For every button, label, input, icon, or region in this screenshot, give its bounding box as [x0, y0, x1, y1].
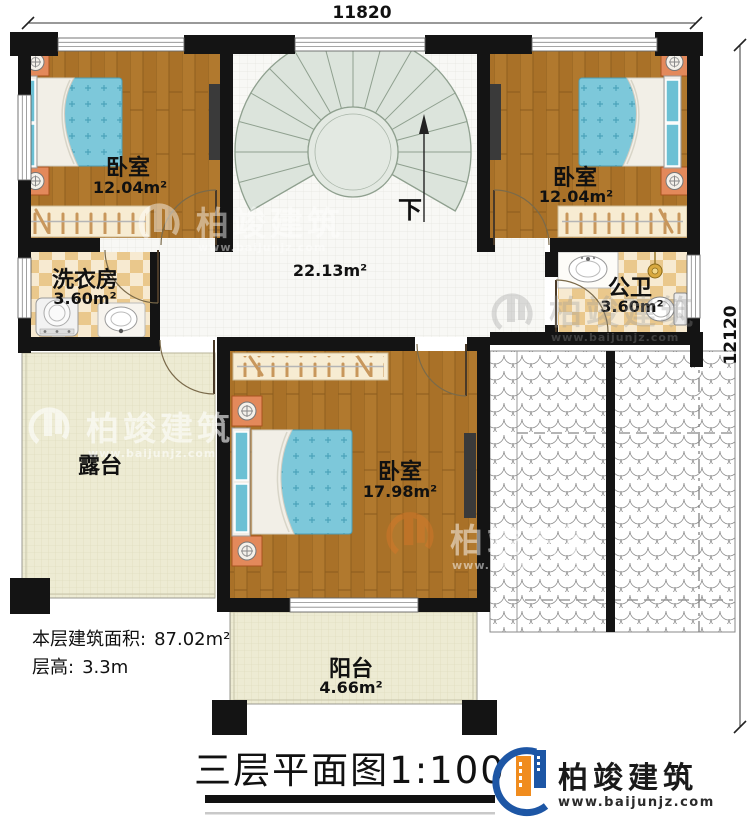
- hall-area: 22.13m²: [293, 261, 367, 280]
- window: [295, 38, 425, 51]
- drawing-title: 三层平面图1:100: [194, 749, 506, 815]
- wardrobe: [22, 206, 150, 237]
- laundry-area: 3.60m²: [53, 289, 116, 308]
- window: [58, 38, 184, 51]
- floor-area-line: 本层建筑面积:87.02m²: [32, 629, 230, 650]
- tv-panel: [464, 433, 476, 518]
- tv-panel: [209, 84, 220, 160]
- wardrobe: [558, 206, 687, 237]
- wardrobe: [233, 353, 388, 380]
- svg-text:柏竣建筑: 柏竣建筑: [86, 409, 234, 448]
- floor-plan-drawing: 下: [0, 0, 750, 833]
- dimension-top: 11820: [22, 3, 702, 29]
- floor-plan-page: 下: [0, 0, 750, 833]
- title-underline-thin: [205, 812, 495, 815]
- stair-down-label: 下: [398, 196, 422, 224]
- title-underline: [205, 795, 495, 803]
- title-text: 三层平面图1:100: [194, 749, 506, 792]
- svg-text:柏竣建筑: 柏竣建筑: [196, 204, 344, 243]
- window: [18, 95, 31, 180]
- window: [18, 258, 31, 318]
- svg-text:www.baijunjz.com: www.baijunjz.com: [551, 331, 679, 344]
- svg-text:www.baijunjz.com: www.baijunjz.com: [198, 241, 326, 254]
- brand-logo: 柏竣建筑 www.baijunjz.com: [496, 750, 715, 813]
- svg-text:柏竣建筑: 柏竣建筑: [450, 521, 598, 560]
- tv-panel: [490, 84, 501, 160]
- dimension-top-label: 11820: [332, 3, 391, 23]
- roof-ridge: [606, 351, 615, 632]
- bed: [579, 76, 681, 168]
- svg-text:柏竣建筑: 柏竣建筑: [549, 293, 697, 332]
- svg-text:www.baijunjz.com: www.baijunjz.com: [88, 447, 216, 460]
- floor-info: 本层建筑面积:87.02m² 层高:3.3m: [32, 629, 230, 678]
- balcony-area: 4.66m²: [319, 678, 382, 697]
- stair-center-landing: [308, 107, 398, 197]
- bedroom-right-area: 12.04m²: [539, 187, 613, 206]
- window: [532, 38, 657, 51]
- brand-name: 柏竣建筑: [558, 761, 698, 796]
- brand-website: www.baijunjz.com: [558, 795, 715, 810]
- floor-height-line: 层高:3.3m: [32, 657, 128, 678]
- dimension-right-label: 12120: [721, 305, 741, 364]
- svg-text:www.baijunjz.com: www.baijunjz.com: [452, 559, 580, 572]
- bed: [232, 428, 352, 536]
- bed: [20, 76, 122, 168]
- laundry-sink: [105, 307, 137, 331]
- bedroom-master-area: 17.98m²: [363, 482, 437, 501]
- balcony-sliding-window: [290, 598, 418, 612]
- bedroom-left-area: 12.04m²: [93, 178, 167, 197]
